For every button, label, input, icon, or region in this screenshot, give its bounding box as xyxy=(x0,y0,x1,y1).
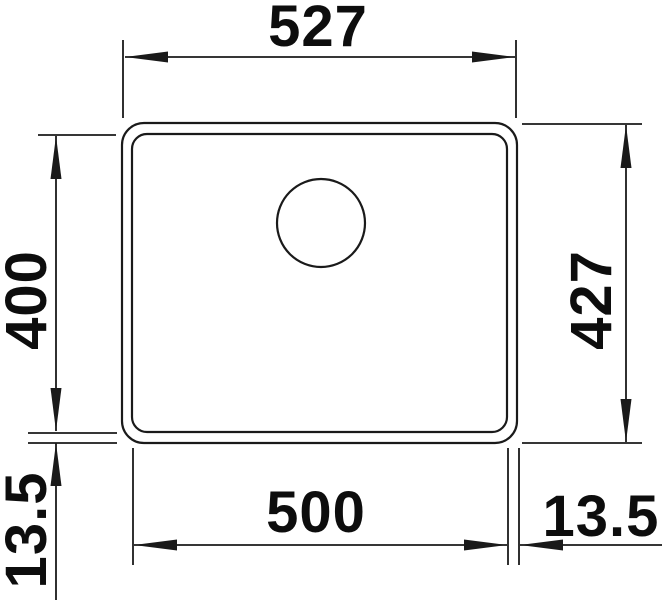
arrow-down-icon xyxy=(621,399,632,442)
arrow-up-icon xyxy=(51,136,62,179)
dimension-bottom-right-rim: 13.5 xyxy=(520,484,662,551)
sink-dimension-drawing: 527 400 13.5 427 xyxy=(0,0,662,600)
arrow-left-icon xyxy=(125,52,168,63)
dimension-value-bottom-width: 500 xyxy=(266,480,366,545)
sink-outer-edge xyxy=(122,123,517,443)
arrow-right-icon xyxy=(464,540,507,551)
arrow-up-icon xyxy=(621,125,632,168)
dimension-top-width: 527 xyxy=(123,0,516,118)
technical-drawing: 527 400 13.5 427 xyxy=(0,0,662,600)
arrow-left-icon xyxy=(134,540,177,551)
arrow-right-icon xyxy=(472,52,515,63)
dimension-bottom-left-rim: 13.5 xyxy=(0,443,62,600)
dimension-left-height: 400 xyxy=(0,135,117,443)
drain-hole xyxy=(277,179,365,267)
dimension-value-left-rim: 13.5 xyxy=(0,472,59,589)
dimension-value-right-rim: 13.5 xyxy=(543,484,660,549)
dimension-value-left-height: 400 xyxy=(0,250,59,350)
sink-outline xyxy=(122,123,517,443)
dimension-value-right-height: 427 xyxy=(559,250,624,350)
arrow-down-icon xyxy=(51,388,62,431)
dimension-right-height: 427 xyxy=(522,124,642,443)
dimension-bottom-width: 500 xyxy=(133,448,519,565)
dimension-value-top-width: 527 xyxy=(268,0,368,59)
